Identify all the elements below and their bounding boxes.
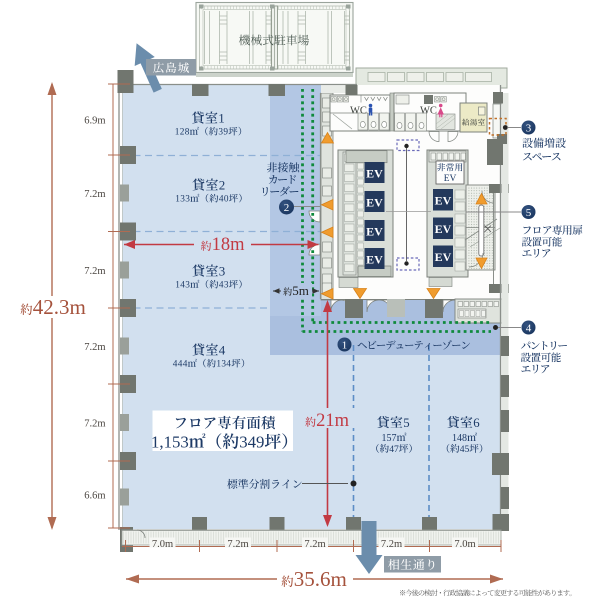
svg-text:1: 1 — [218, 111, 225, 126]
svg-text:43: 43 — [219, 281, 229, 291]
svg-text:133: 133 — [175, 195, 190, 205]
svg-text:18m: 18m — [212, 235, 246, 255]
svg-text:7.2m: 7.2m — [84, 266, 105, 277]
svg-text:7.2m: 7.2m — [381, 539, 402, 550]
svg-text:35.6m: 35.6m — [294, 567, 347, 591]
svg-text:4: 4 — [219, 343, 226, 358]
svg-text:134: 134 — [216, 360, 231, 370]
svg-text:2: 2 — [284, 202, 290, 214]
svg-text:128: 128 — [175, 128, 190, 138]
svg-text:4: 4 — [526, 323, 532, 335]
svg-text:EV: EV — [366, 196, 383, 210]
svg-text:157: 157 — [382, 433, 397, 444]
svg-text:5: 5 — [403, 416, 410, 430]
svg-text:42.3m: 42.3m — [33, 295, 86, 319]
svg-text:3: 3 — [219, 264, 226, 279]
svg-text:EV: EV — [366, 225, 383, 239]
svg-text:2: 2 — [219, 178, 226, 193]
svg-text:7.2m: 7.2m — [227, 539, 248, 550]
svg-text:EV: EV — [435, 194, 452, 208]
svg-text:39: 39 — [218, 128, 228, 138]
svg-text:7.0m: 7.0m — [454, 539, 475, 550]
svg-text:1,153: 1,153 — [151, 433, 189, 452]
svg-text:WC: WC — [420, 106, 437, 117]
svg-text:45: 45 — [460, 444, 470, 455]
svg-text:148: 148 — [452, 433, 467, 444]
svg-text:40: 40 — [219, 195, 229, 205]
svg-text:EV: EV — [435, 250, 452, 264]
svg-text:5m: 5m — [292, 283, 309, 298]
svg-text:6.6m: 6.6m — [84, 490, 105, 501]
svg-text:WC: WC — [350, 106, 367, 117]
svg-text:7.0m: 7.0m — [152, 539, 173, 550]
svg-text:143: 143 — [175, 281, 190, 291]
svg-text:3: 3 — [526, 123, 532, 135]
svg-text:5: 5 — [526, 207, 532, 219]
svg-text:EV: EV — [366, 253, 383, 267]
svg-text:EV: EV — [444, 174, 457, 184]
svg-text:444: 444 — [173, 360, 188, 370]
svg-text:349: 349 — [239, 433, 264, 452]
svg-text:6.9m: 6.9m — [84, 115, 105, 126]
svg-text:7.2m: 7.2m — [84, 418, 105, 429]
svg-text:1: 1 — [342, 340, 348, 352]
svg-text:7.2m: 7.2m — [84, 342, 105, 353]
svg-text:7.2m: 7.2m — [84, 189, 105, 200]
svg-text:EV: EV — [366, 167, 383, 181]
svg-text:EV: EV — [435, 222, 452, 236]
svg-text:47: 47 — [389, 444, 399, 455]
svg-text:7.2m: 7.2m — [304, 539, 325, 550]
svg-text:21m: 21m — [316, 411, 350, 431]
svg-text:6: 6 — [473, 416, 480, 430]
